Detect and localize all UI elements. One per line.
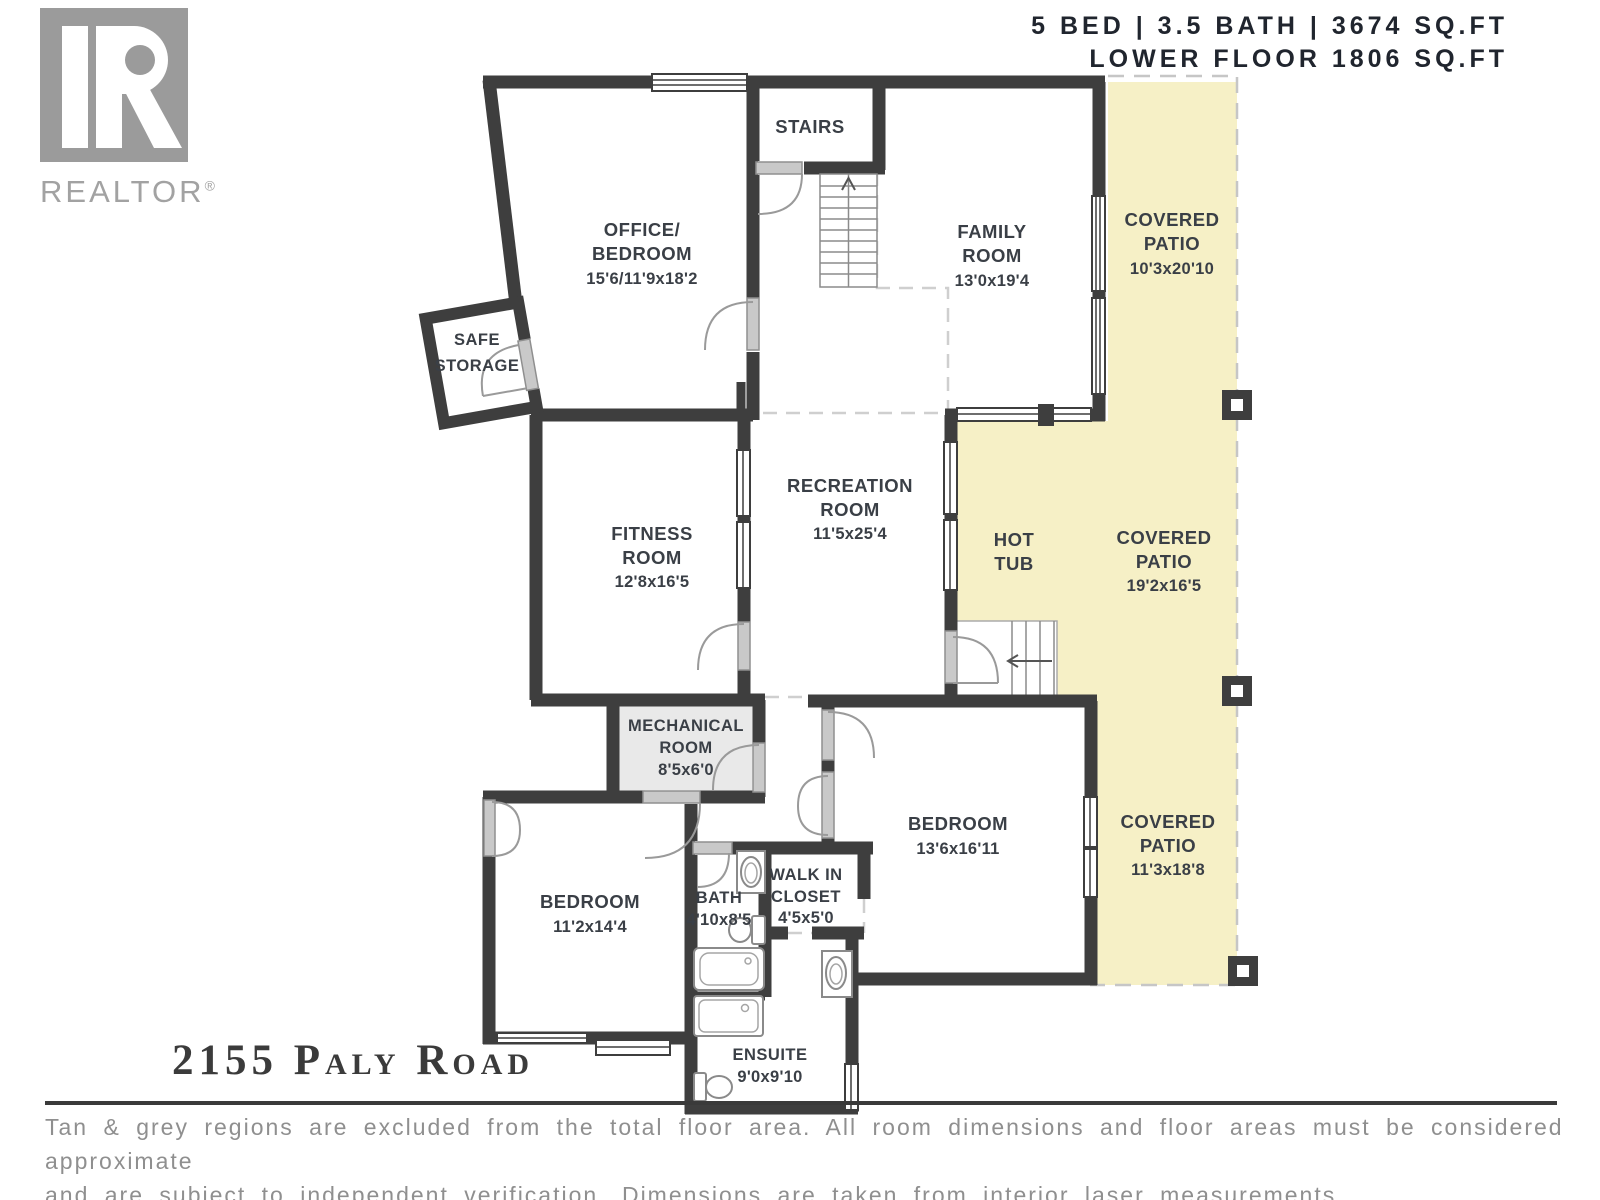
room-label-fitness: FITNESS bbox=[611, 523, 693, 544]
room-dims-office: 15'6/11'9x18'2 bbox=[586, 270, 697, 288]
room-label-stairs: STAIRS bbox=[775, 116, 844, 137]
floor-plan-drawing: STAIRS OFFICE/ BEDROOM 15'6/11'9x18'2 SA… bbox=[0, 0, 1600, 1200]
property-address: 2155 Paly Road bbox=[172, 1036, 534, 1085]
room-label-patio-upper: COVERED bbox=[1125, 209, 1220, 230]
disclaimer-line-1: Tan & grey regions are excluded from the… bbox=[45, 1110, 1600, 1178]
room-label-fitness-2: ROOM bbox=[622, 547, 682, 568]
room-dims-patio-upper: 10'3x20'10 bbox=[1130, 260, 1214, 278]
floor-plan-page: REALTOR® 5 BED | 3.5 BATH | 3674 SQ.FT L… bbox=[0, 0, 1600, 1200]
room-label-office: OFFICE/ bbox=[604, 219, 680, 240]
room-dims-patio-middle: 19'2x16'5 bbox=[1127, 577, 1202, 595]
room-label-bedroom-left: BEDROOM bbox=[540, 891, 640, 912]
room-label-patio-lower-2: PATIO bbox=[1140, 835, 1196, 856]
room-label-family-2: ROOM bbox=[962, 245, 1022, 266]
room-label-family: FAMILY bbox=[957, 221, 1026, 242]
room-dims-fitness: 12'8x16'5 bbox=[615, 573, 690, 591]
room-dims-ensuite: 9'0x9'10 bbox=[737, 1068, 802, 1086]
room-label-mechanical: MECHANICAL bbox=[628, 717, 744, 735]
divider-line bbox=[45, 1101, 1557, 1105]
interior-staircase bbox=[820, 174, 877, 287]
disclaimer: Tan & grey regions are excluded from the… bbox=[45, 1110, 1600, 1200]
disclaimer-line-2: and are subject to independent verificat… bbox=[45, 1178, 1600, 1200]
room-dims-family: 13'0x19'4 bbox=[955, 272, 1030, 290]
room-label-walk-in: WALK IN bbox=[769, 866, 842, 884]
room-dims-bedroom-left: 11'2x14'4 bbox=[553, 918, 627, 936]
room-label-ensuite: ENSUITE bbox=[732, 1046, 807, 1064]
room-label-hot-tub: HOT bbox=[994, 529, 1035, 550]
room-dims-recreation: 11'5x25'4 bbox=[813, 525, 887, 543]
room-label-walk-in-2: CLOSET bbox=[771, 888, 841, 906]
room-dims-patio-lower: 11'3x18'8 bbox=[1131, 861, 1205, 879]
patio-staircase bbox=[947, 621, 1057, 699]
room-label-office-2: BEDROOM bbox=[592, 243, 692, 264]
room-label-patio-middle-2: PATIO bbox=[1136, 551, 1192, 572]
room-label-patio-lower: COVERED bbox=[1121, 811, 1216, 832]
room-label-patio-upper-2: PATIO bbox=[1144, 233, 1200, 254]
room-label-patio-middle: COVERED bbox=[1117, 527, 1212, 548]
room-label-mechanical-2: ROOM bbox=[659, 739, 712, 757]
room-dims-walk-in: 4'5x5'0 bbox=[778, 909, 834, 927]
room-label-bath: BATH bbox=[696, 889, 743, 907]
room-dims-bath: 4'10x8'5 bbox=[686, 911, 751, 929]
room-label-bedroom-right: BEDROOM bbox=[908, 813, 1008, 834]
room-label-recreation: RECREATION bbox=[787, 475, 913, 496]
room-dims-bedroom-right: 13'6x16'11 bbox=[916, 840, 999, 858]
room-label-recreation-2: ROOM bbox=[820, 499, 880, 520]
room-label-safe-storage-2: STORAGE bbox=[435, 357, 520, 375]
room-label-hot-tub-2: TUB bbox=[994, 553, 1034, 574]
room-dims-mechanical: 8'5x6'0 bbox=[658, 761, 714, 779]
room-label-safe-storage: SAFE bbox=[454, 331, 500, 349]
